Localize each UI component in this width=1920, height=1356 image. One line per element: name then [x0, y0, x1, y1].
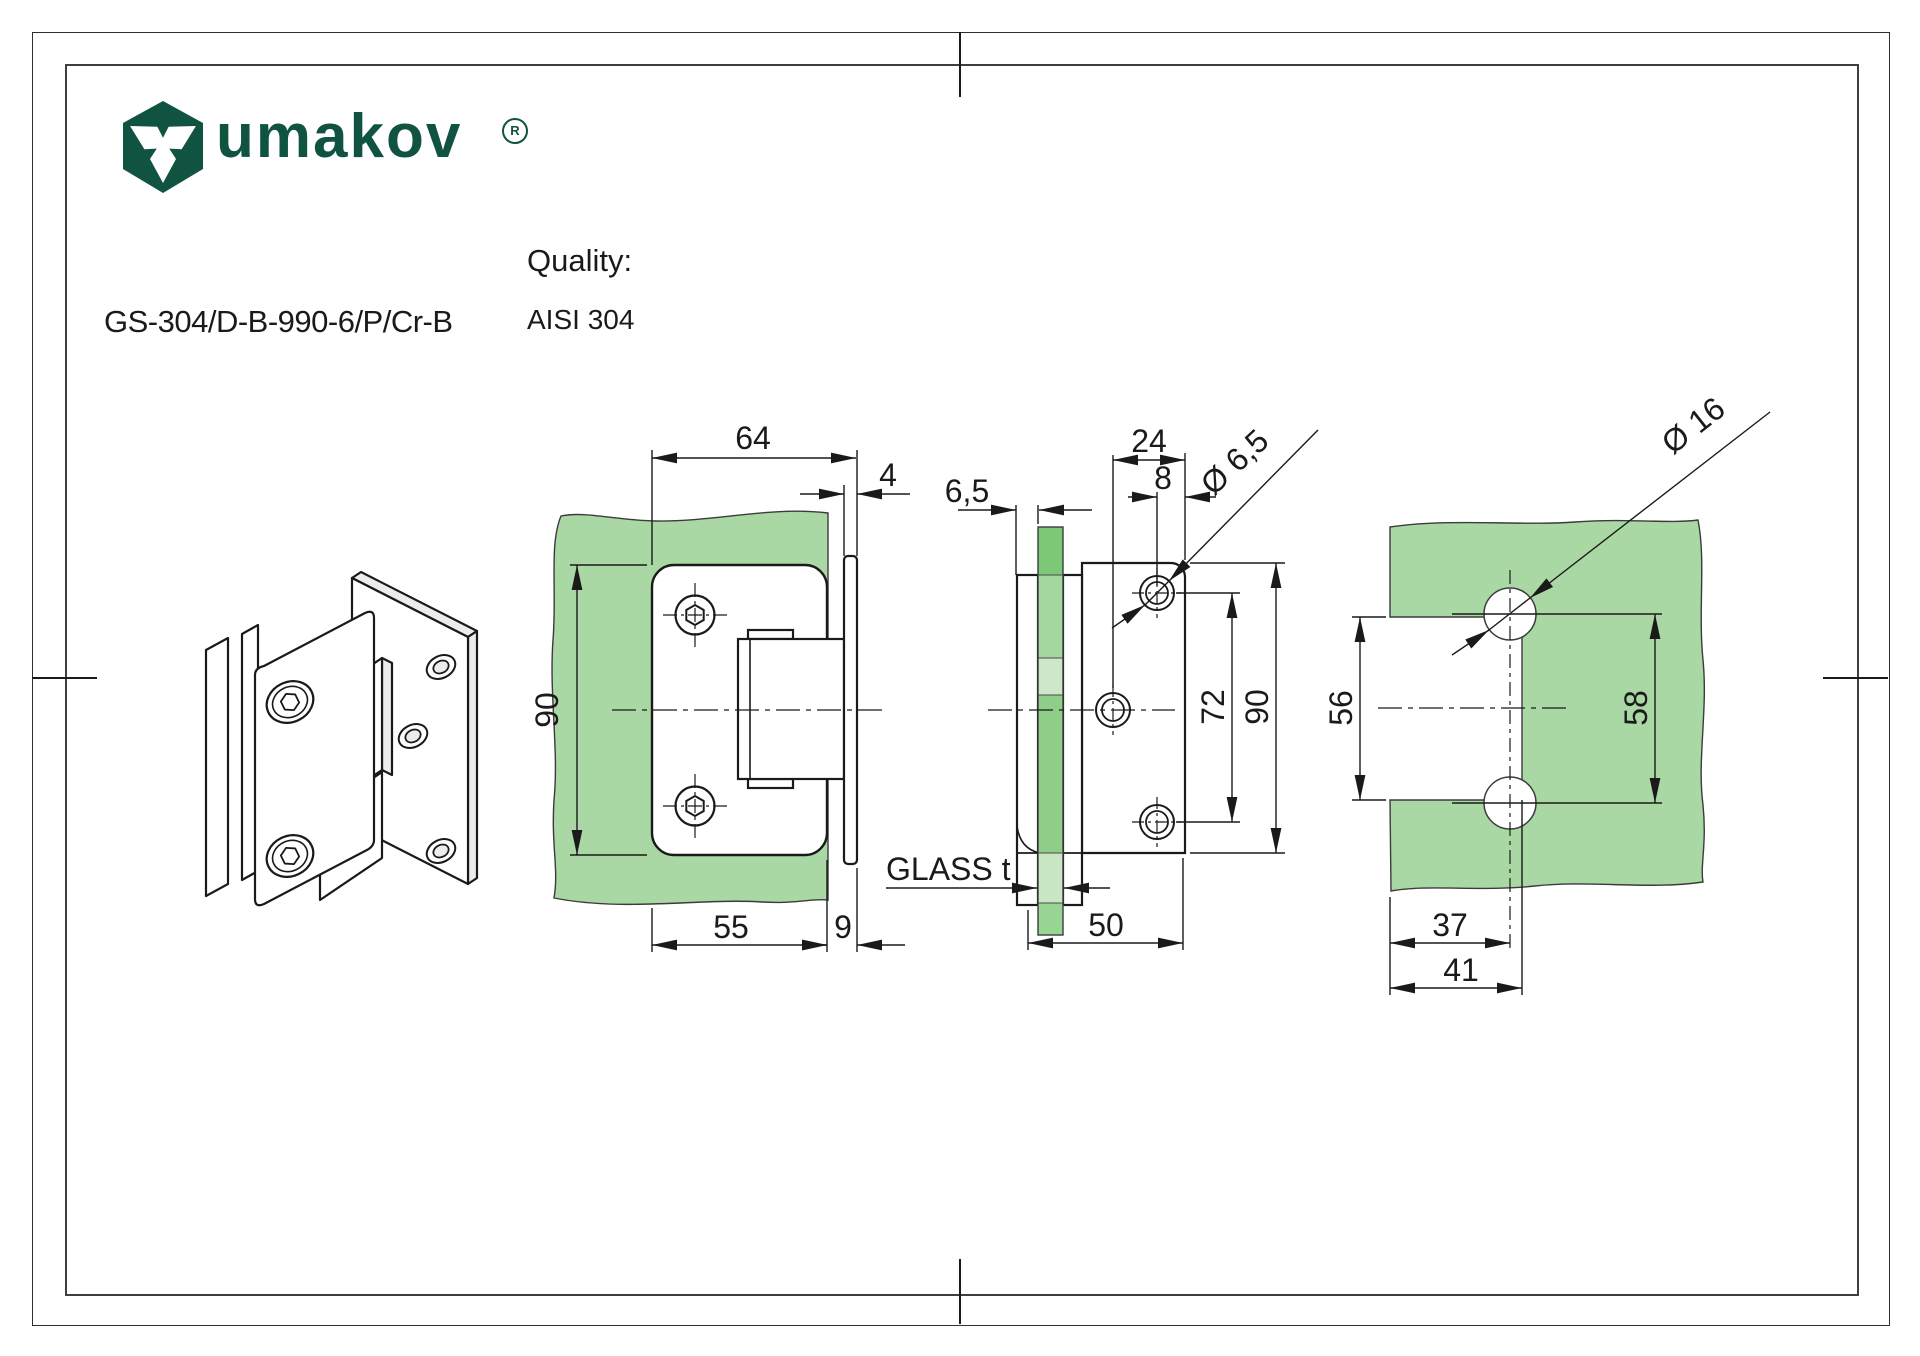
dim-side-height: 90	[1239, 689, 1275, 725]
glass-thickness-label: GLASS t	[886, 851, 1011, 887]
isometric-view	[206, 572, 477, 905]
dim-cutout-hole-center-depth: 37	[1432, 907, 1468, 943]
technical-drawing: 64 4 90 55 9	[0, 0, 1920, 1356]
dim-cutout-notch-height: 56	[1323, 690, 1359, 726]
cutout-glass-panel	[1390, 520, 1704, 891]
side-view: 6,5 24 8 Ø 6,5 72 90 GLASS t 50	[886, 422, 1318, 950]
side-glass-strip	[1038, 527, 1063, 935]
dim-cutout-hole-spacing: 58	[1618, 690, 1654, 726]
dim-cutout-notch-depth: 41	[1443, 952, 1479, 988]
dim-front-height: 90	[529, 692, 565, 728]
dim-front-plate-width: 55	[713, 909, 749, 945]
side-clamp-plate-outer	[1017, 575, 1038, 905]
drawing-sheet: umakov R GS-304/D-B-990-6/P/Cr-B Quality…	[0, 0, 1920, 1356]
dim-front-offset: 9	[834, 909, 852, 945]
glass-cutout-view: Ø 16 56 58 37 41	[1323, 390, 1770, 995]
dim-side-hole-edge-offset: 8	[1154, 460, 1172, 496]
dim-front-total-width: 64	[735, 420, 771, 456]
iso-back-plate	[206, 638, 228, 896]
dim-side-width: 50	[1088, 907, 1124, 943]
dim-side-hole-spacing: 72	[1195, 689, 1231, 725]
dim-side-screw-hole-dia: Ø 6,5	[1194, 422, 1276, 502]
front-hinge-knuckle	[738, 630, 844, 788]
dim-side-glass-offset: 6,5	[945, 473, 989, 509]
front-view: 64 4 90 55 9	[529, 420, 910, 952]
dim-side-hole-center-offset: 24	[1131, 423, 1167, 459]
dim-front-wall-thickness: 4	[879, 457, 897, 493]
